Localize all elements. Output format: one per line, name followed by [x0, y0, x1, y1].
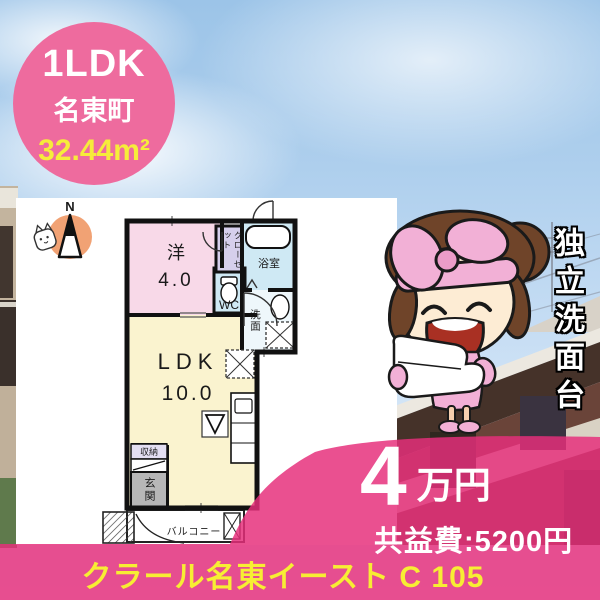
rent-amount: 4: [360, 442, 407, 511]
feature-caption: 独立洗面台: [544, 227, 588, 417]
price-block: 4 万円 共益費:5200円: [360, 442, 573, 560]
rent-unit: 万円: [417, 455, 491, 511]
property-name: クラール名東イースト C 105: [0, 552, 600, 596]
mascot-girl-icon: [381, 211, 549, 433]
listing-flyer: N 洋 4.0 浴室 WC LDK 10.0 収納 バルコニー クローゼット 洗…: [0, 0, 600, 600]
